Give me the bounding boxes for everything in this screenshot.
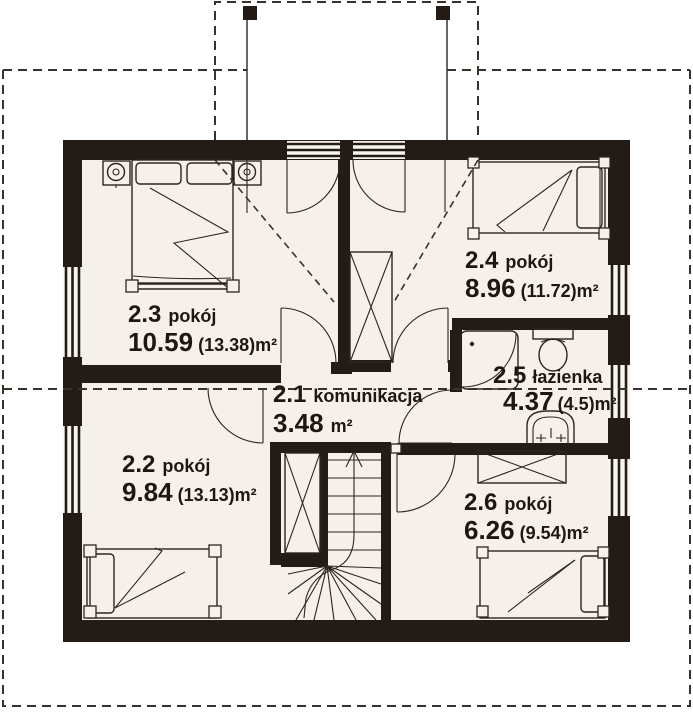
room21-area: 3.48 xyxy=(273,408,324,438)
wall-bath-room26 xyxy=(397,443,608,455)
floor-plan-page: 2.3pokój 10.59(13.38)m² 2.4pokój 8.96(11… xyxy=(0,0,693,712)
dormer-post-left xyxy=(243,6,257,20)
roof-gable-outline xyxy=(215,2,478,140)
wall-room23-room22 xyxy=(82,365,281,383)
room26-name: pokój xyxy=(504,494,552,514)
room21-name: komunikacja xyxy=(313,386,423,406)
room22-area-unit: (13.13)m² xyxy=(178,485,257,505)
room25-area-unit: (4.5)m² xyxy=(558,394,617,414)
window-dormer-left xyxy=(287,141,340,159)
room21-area-unit: m² xyxy=(331,416,353,436)
window-room24-right xyxy=(608,265,630,315)
room22-name: pokój xyxy=(162,456,210,476)
svg-text:2.1komunikacja: 2.1komunikacja xyxy=(273,381,423,408)
room25-number: 2.5 xyxy=(493,362,526,389)
window-room23-left xyxy=(63,267,82,357)
room25-name: łazienka xyxy=(532,367,603,387)
window-dormer-right xyxy=(353,141,405,159)
wall-stairs-room26 xyxy=(381,443,391,620)
wall-center-partition xyxy=(338,160,350,362)
room23-number: 2.3 xyxy=(128,301,161,328)
window-room26-right xyxy=(608,459,630,516)
room21-number: 2.1 xyxy=(273,381,306,408)
room22-area: 9.84 xyxy=(122,477,173,507)
wall-room22-stairs xyxy=(270,442,281,565)
window-room22-left xyxy=(63,426,82,513)
dormer-outline xyxy=(243,6,450,140)
room23-area: 10.59 xyxy=(128,327,193,357)
room23-area-unit: (13.38)m² xyxy=(198,335,277,355)
room26-area-unit: (9.54)m² xyxy=(520,523,589,543)
room24-name: pokój xyxy=(505,252,553,272)
room22-number: 2.2 xyxy=(122,451,155,478)
svg-text:2.2pokój: 2.2pokój xyxy=(122,451,210,478)
room25-area: 4.37 xyxy=(503,386,554,416)
floor-plan-drawing: 2.3pokój 10.59(13.38)m² 2.4pokój 8.96(11… xyxy=(0,0,693,712)
room26-number: 2.6 xyxy=(464,489,497,516)
svg-text:2.5łazienka: 2.5łazienka xyxy=(493,362,603,389)
wall-room24-bath xyxy=(452,318,608,330)
svg-text:2.6pokój: 2.6pokój xyxy=(464,489,552,516)
room23-name: pokój xyxy=(168,306,216,326)
room24-area-unit: (11.72)m² xyxy=(521,281,599,301)
dormer-post-right xyxy=(436,6,450,20)
svg-text:2.3pokój: 2.3pokój xyxy=(128,301,216,328)
room24-area: 8.96 xyxy=(465,273,516,303)
svg-text:2.4pokój: 2.4pokój xyxy=(465,247,553,274)
room24-number: 2.4 xyxy=(465,247,499,274)
room26-area: 6.26 xyxy=(464,515,515,545)
